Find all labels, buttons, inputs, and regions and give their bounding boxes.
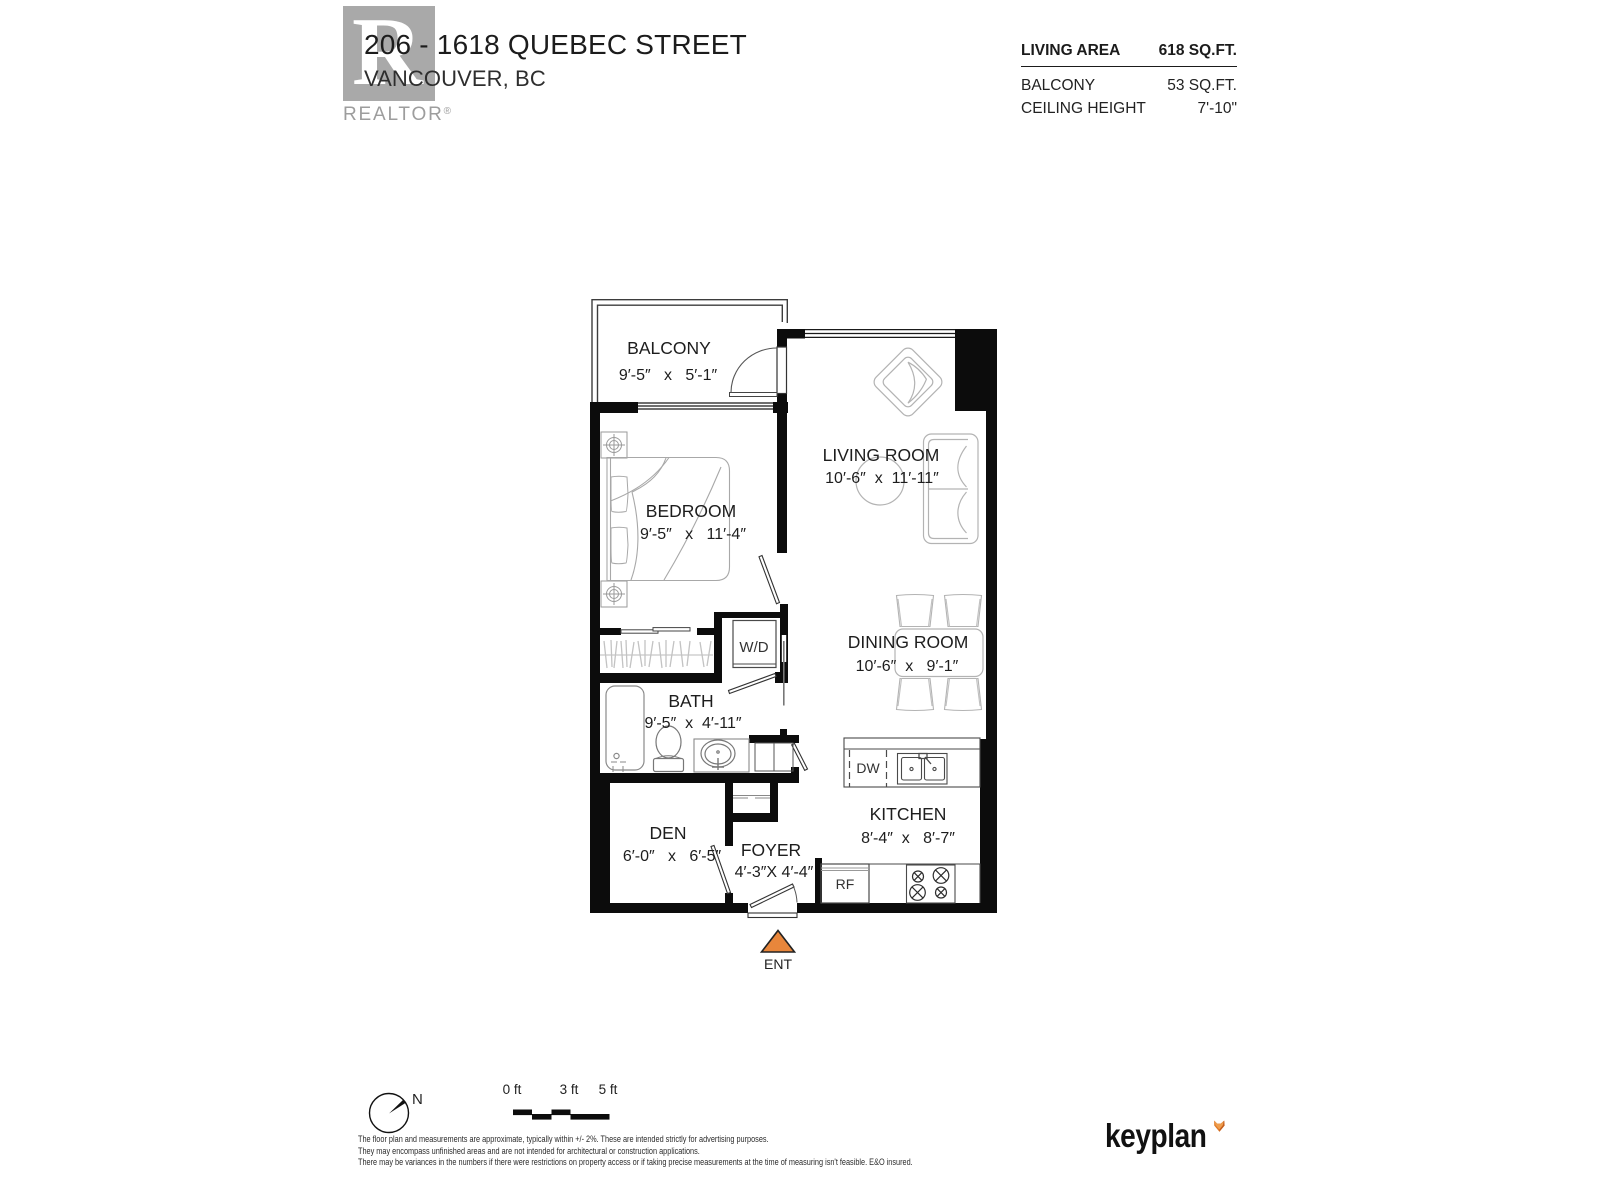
svg-text:4′-3″X 4′-4″: 4′-3″X 4′-4″ [735, 864, 814, 881]
svg-text:DEN: DEN [650, 823, 687, 843]
svg-text:8′-4″ x 8′-7″: 8′-4″ x 8′-7″ [861, 830, 955, 847]
svg-text:9′-5″ x 4′-11″: 9′-5″ x 4′-11″ [644, 715, 741, 732]
svg-text:RF: RF [836, 876, 855, 892]
svg-text:10′-6″ x 9′-1″: 10′-6″ x 9′-1″ [856, 658, 959, 675]
svg-text:N: N [412, 1091, 423, 1108]
svg-text:ENT: ENT [764, 956, 792, 972]
svg-text:DINING ROOM: DINING ROOM [848, 632, 969, 652]
svg-text:BALCONY: BALCONY [627, 338, 711, 358]
svg-text:5 ft: 5 ft [599, 1082, 618, 1097]
svg-text:BEDROOM: BEDROOM [646, 501, 736, 521]
svg-text:LIVING ROOM: LIVING ROOM [823, 445, 940, 465]
svg-text:W/D: W/D [739, 639, 768, 656]
svg-text:FOYER: FOYER [741, 840, 801, 860]
svg-text:6′-0″ x 6′-5″: 6′-0″ x 6′-5″ [623, 848, 722, 865]
svg-text:3 ft: 3 ft [560, 1082, 579, 1097]
svg-text:9′-5″ x 11′-4″: 9′-5″ x 11′-4″ [640, 526, 746, 543]
svg-text:0 ft: 0 ft [503, 1082, 522, 1097]
svg-text:10′-6″ x 11′-11″: 10′-6″ x 11′-11″ [825, 470, 939, 487]
svg-text:BATH: BATH [668, 691, 713, 711]
svg-text:9′-5″ x 5′-1″: 9′-5″ x 5′-1″ [619, 367, 718, 384]
svg-text:DW: DW [856, 760, 880, 776]
svg-text:KITCHEN: KITCHEN [870, 804, 947, 824]
